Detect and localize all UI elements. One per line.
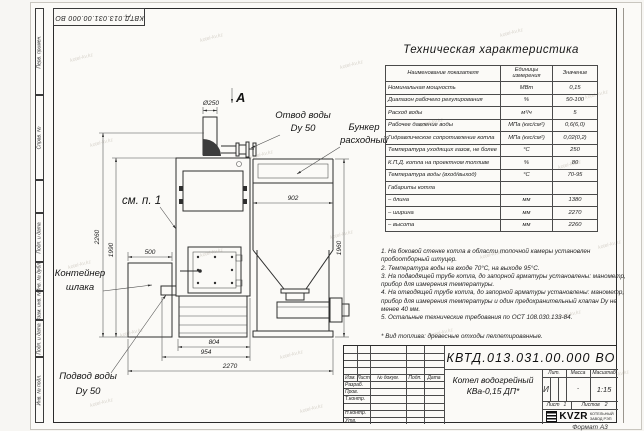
spec-unit: % <box>501 94 553 107</box>
spec-value <box>553 182 598 195</box>
spec-name: Температура воды (вход/выход) <box>386 169 501 182</box>
logo-waves-icon <box>546 411 557 422</box>
logo-text: KVZR <box>559 411 587 422</box>
table-row: Температура уходящих газов, не более°С25… <box>386 144 598 157</box>
table-row: – высотамм2260 <box>386 219 598 232</box>
view-label: A <box>235 90 245 105</box>
spec-unit: мм <box>501 194 553 207</box>
note-line: 3. На подводящей трубе котла, до запорно… <box>381 273 633 290</box>
spec-value: 5 <box>553 107 598 120</box>
dim-boiler-height: 1990 <box>108 242 115 257</box>
spec-unit: мм <box>501 207 553 220</box>
dim-bunker-width: 902 <box>288 195 299 202</box>
col-podp: Подп. <box>406 374 424 381</box>
table-row: Габариты котла <box>386 182 598 195</box>
sheet-number: 1 <box>564 402 567 408</box>
sheets-label: Листов <box>582 402 600 408</box>
col-izm: Изм. <box>344 374 357 381</box>
table-row: – ширинамм2270 <box>386 207 598 220</box>
company-logo: KVZR КОТЕЛЬНЫЙ ЗАВОД РЭП <box>543 410 617 423</box>
note-line: 5. Остальные технические требования по О… <box>381 314 633 322</box>
spec-name: Рабочее давление воды <box>386 119 501 132</box>
water-inlet-label: Подвод воды <box>59 371 117 382</box>
document-designation: КВТД.013.031.00.000 ВО <box>444 346 618 369</box>
boiler-body <box>176 158 250 337</box>
table-row: Расход водым³/ч5 <box>386 107 598 120</box>
water-inlet-stub <box>161 286 176 295</box>
col-data: Дата <box>424 374 444 381</box>
spec-unit <box>501 182 553 195</box>
spec-unit: % <box>501 157 553 170</box>
fuel-bunker <box>253 159 349 337</box>
sheets-number: 2 <box>605 402 608 408</box>
drawing-sheet: { "sheet": { "top_stamp": "КВТД.013.031.… <box>0 0 644 430</box>
role-razrab: Разраб. <box>344 381 371 388</box>
fuel-note: * Вид топлива: древесные отходы пеллетир… <box>381 333 633 340</box>
table-row: Температура воды (вход/выход)°С70-95 <box>386 169 598 182</box>
spec-col-units: Единицы измерения <box>501 66 553 82</box>
col-dokum: № докум. <box>370 374 406 381</box>
table-row: Диапазон рабочего регулирования%50-100 <box>386 94 598 107</box>
title-block: Изм. Лист № докум. Подп. Дата Разраб. Пр… <box>343 345 617 423</box>
spec-name: К.П.Д. котла на проектном топливе <box>386 157 501 170</box>
scale-value: 1:15 <box>590 377 618 401</box>
spec-unit: МВт <box>501 82 553 95</box>
slag-container-label-2: шлака <box>66 282 94 293</box>
see-note-label: см. п. 1 <box>122 195 161 207</box>
spec-unit: МПа (кгс/см²) <box>501 119 553 132</box>
spec-name: – длина <box>386 194 501 207</box>
sheet-label: Лист <box>547 402 560 408</box>
spec-unit: м³/ч <box>501 107 553 120</box>
role-prov: Пров. <box>344 388 371 395</box>
spec-table-title: Техническая характеристика <box>385 44 597 56</box>
dim-boiler-width: 804 <box>209 339 220 346</box>
sheets-cell: Листов 2 <box>571 401 618 409</box>
company-line2: ЗАВОД РЭП <box>590 417 614 422</box>
lit-header: Лит. <box>542 369 566 377</box>
spec-value: 2270 <box>553 207 598 220</box>
water-outlet-dy: Dy 50 <box>291 123 317 134</box>
view-marker-a: A <box>232 88 245 105</box>
dim-chimney-diameter: Ø250 <box>202 100 219 107</box>
bunker-label: Бункер <box>348 122 379 133</box>
chimney-and-outlet <box>203 117 256 167</box>
mass-header: Масса <box>566 369 590 377</box>
slag-container <box>128 263 172 337</box>
table-row: Номинальная мощностьМВт0,15 <box>386 82 598 95</box>
spec-name: Номинальная мощность <box>386 82 501 95</box>
spec-unit: МПа (кгс/см²) <box>501 132 553 145</box>
format-note: Формат А3 <box>545 424 635 431</box>
spec-value: 2260 <box>553 219 598 232</box>
spec-value: 50-100 <box>553 94 598 107</box>
spec-name: – высота <box>386 219 501 232</box>
bunker-label-2: расходный <box>339 135 389 146</box>
spec-value: 0,6(6,0) <box>553 119 598 132</box>
dim-total-height: 2260 <box>94 229 101 245</box>
note-line: 4. На отводящей трубе котла, до запорной… <box>381 289 633 314</box>
dim-container-width: 500 <box>145 249 156 256</box>
spec-header-row: Наименование показателя Единицы измерени… <box>386 66 598 82</box>
document-name-line1: Котел водогрейный <box>453 375 534 386</box>
scale-header: Масштаб <box>590 369 618 377</box>
role-utv: Утв. <box>344 417 371 424</box>
spec-name: Диапазон рабочего регулирования <box>386 94 501 107</box>
technical-notes: 1. На боковой стенке котла в области топ… <box>381 248 633 323</box>
role-tkontr: Т.контр. <box>344 395 371 402</box>
spec-value: 80 <box>553 157 598 170</box>
spec-col-value: Значение <box>553 66 598 82</box>
table-row: – длинамм1380 <box>386 194 598 207</box>
water-inlet-dy: Dy 50 <box>76 386 102 397</box>
spec-value: 0,15 <box>553 82 598 95</box>
spec-value: 70-95 <box>553 169 598 182</box>
spec-value: 0,02(0,2) <box>553 132 598 145</box>
company-name: КОТЕЛЬНЫЙ ЗАВОД РЭП <box>590 412 614 421</box>
spec-value: 1380 <box>553 194 598 207</box>
slag-container-label: Контейнер <box>55 268 105 279</box>
spec-name: Габариты котла <box>386 182 501 195</box>
mass-value: - <box>566 377 590 401</box>
spec-name: – ширина <box>386 207 501 220</box>
dim-bunker-height: 1960 <box>336 240 343 255</box>
spec-table: Наименование показателя Единицы измерени… <box>385 65 598 232</box>
dim-boiler-width-2: 954 <box>201 349 212 356</box>
table-row: Рабочее давление водыМПа (кгс/см²)0,6(6,… <box>386 119 598 132</box>
spec-col-name: Наименование показателя <box>386 66 501 82</box>
note-line: 1. На боковой стенке котла в области топ… <box>381 248 633 265</box>
table-row: Гидравлическое сопротивление котлаМПа (к… <box>386 132 598 145</box>
document-name-line2: КВа-0,15 ДП* <box>467 386 520 397</box>
spec-unit: мм <box>501 219 553 232</box>
dimensions: Ø250 2260 1990 500 902 1960 804 954 2270 <box>94 100 349 375</box>
spec-unit: °С <box>501 169 553 182</box>
table-row: К.П.Д. котла на проектном топливе%80 <box>386 157 598 170</box>
role-nkontr: Н.контр. <box>344 410 371 417</box>
sheet-cell: Лист 1 <box>542 401 571 409</box>
document-name: Котел водогрейный КВа-0,15 ДП* <box>444 371 542 401</box>
spec-name: Гидравлическое сопротивление котла <box>386 132 501 145</box>
col-list: Лист <box>357 374 370 381</box>
spec-value: 250 <box>553 144 598 157</box>
lit-value: И <box>542 377 550 401</box>
spec-name: Расход воды <box>386 107 501 120</box>
spec-name: Температура уходящих газов, не более <box>386 144 501 157</box>
spec-unit: °С <box>501 144 553 157</box>
note-line: 2. Температура воды на входе 70°С, на вы… <box>381 265 633 273</box>
dim-total-width: 2270 <box>222 363 238 370</box>
water-outlet-label: Отвод воды <box>275 110 331 121</box>
